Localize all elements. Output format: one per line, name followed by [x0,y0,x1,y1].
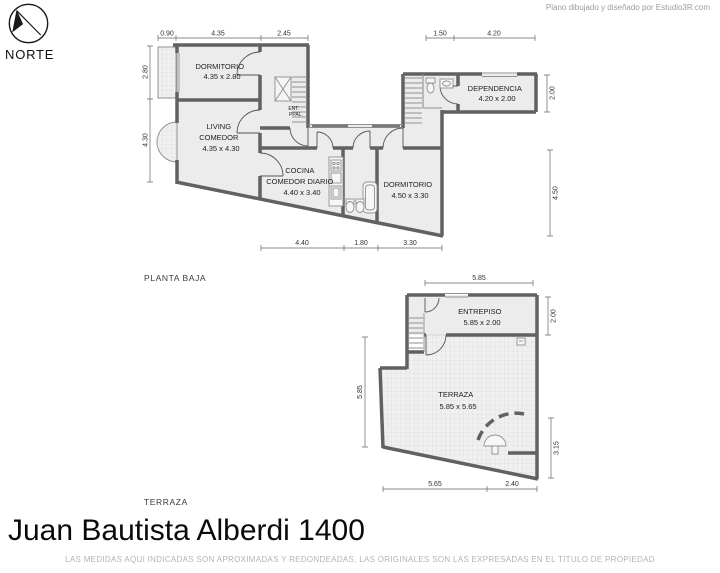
dim-label: 1.50 [433,31,447,38]
floor-plan-sheet: NORTE [0,0,720,573]
dim-label: 4.50 [553,186,560,200]
dim-label: 5.65 [428,481,442,488]
dim-label: 3.15 [554,441,561,455]
dim-label: 4.35 [211,31,225,38]
dim-label: 4.30 [143,133,150,147]
north-compass-icon [9,4,47,42]
footer-disclaimer: LAS MEDIDAS AQUI INDICADAS SON APROXIMAD… [0,555,720,564]
dim-label: 2.45 [277,31,291,38]
bay-window [157,122,177,162]
balcony [158,47,177,98]
dim-label: 5.85 [472,275,486,282]
dim-label: 4.20 [487,31,501,38]
dim-label: 3.30 [403,240,417,247]
dim-label: 2.40 [505,481,519,488]
dim-label: 2.00 [551,309,558,323]
planta-baja-plan: 0.90 4.35 2.45 1.50 4.20 2.80 4.30 2.00 … [143,31,560,284]
dim-label: 0.90 [160,31,174,38]
dim-label: 1.80 [354,240,368,247]
page-title: Juan Bautista Alberdi 1400 [8,514,365,548]
dim-label: 4.40 [295,240,309,247]
section-label-terraza: TERRAZA [144,497,188,507]
dim-label: 5.85 [357,385,364,399]
section-label-planta-baja: PLANTA BAJA [144,273,206,283]
terraza-plan: 5.85 2.00 5.85 3.15 5.65 2.40 ENTREPISO … [144,275,561,507]
drain-icon [517,338,525,345]
dim-label: 2.80 [143,65,150,79]
north-label: NORTE [5,47,54,62]
credit-text: Plano dibujado y diseñado por Estudio3R.… [546,3,710,12]
plan-canvas: NORTE [0,0,720,573]
dim-label: 2.00 [550,86,557,100]
